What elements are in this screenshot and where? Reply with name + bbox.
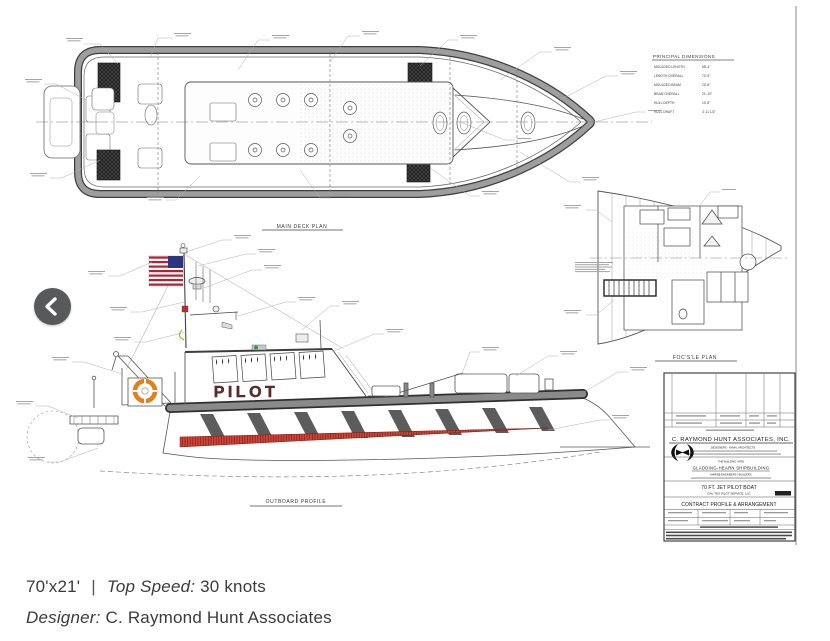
focsle-plan-view: FOC'S'LE PLAN — [590, 185, 788, 361]
focsle-interior — [624, 206, 756, 330]
dim-row-label: HULL DEPTH — [654, 101, 675, 105]
dim-row-label: LENGTH OVERALL — [654, 74, 684, 78]
foredeck-fittings — [368, 373, 553, 397]
carousel-prev-button[interactable] — [34, 288, 71, 325]
blueprint-drawing: MAIN DECK PLAN PRINCIPAL DIMENSIONS MOUL… — [0, 0, 830, 560]
deckhouse-plan — [92, 82, 490, 168]
main-deck-plan-view: MAIN DECK PLAN — [36, 50, 652, 230]
dim-row-label: MOULDED BEAM — [654, 83, 681, 87]
wheelhouse-windows — [212, 351, 325, 383]
designer-label: Designer: — [26, 608, 101, 627]
dim-row-value: 68'-4" — [702, 65, 711, 69]
nav-light-green — [254, 346, 258, 350]
main-deck-plan-label: MAIN DECK PLAN — [277, 224, 328, 230]
caption-specs: 70'x21'|Top Speed: 30 knots — [26, 577, 266, 597]
dim-row-value: 20'-8" — [702, 83, 711, 87]
us-flag — [149, 256, 183, 286]
dim-row-value: 3'-11 1/2" — [702, 110, 716, 114]
dim-row-label: BEAM OVERALL — [654, 92, 680, 96]
principal-dimensions-rows: MOULDED LENGTH 68'-4" LENGTH OVERALL 70'… — [654, 65, 716, 114]
top-speed-label: Top Speed: — [107, 577, 195, 596]
title-block-sheet-title: CONTRACT PROFILE & ARRANGEMENT — [681, 502, 776, 508]
focsle-plan-label: FOC'S'LE PLAN — [673, 355, 717, 361]
title-block-builder-heading: THE BUILDING YARD — [718, 460, 744, 464]
principal-dimensions-table: PRINCIPAL DIMENSIONS MOULDED LENGTH 68'-… — [652, 54, 734, 114]
focsle-ladder — [604, 280, 656, 296]
page: MAIN DECK PLAN PRINCIPAL DIMENSIONS MOUL… — [0, 0, 830, 641]
designer-value: C. Raymond Hunt Associates — [106, 608, 332, 627]
title-block-builder-subtitle: MARINE ENGINEERS / BUILDERS — [710, 473, 751, 477]
caption-separator: | — [91, 577, 96, 596]
dim-row-label: MOULDED LENGTH — [654, 65, 685, 69]
title-block-firm-subtitle: DESIGNERS - NAVAL ARCHITECTS — [711, 446, 756, 450]
dim-row-value: 21'-10" — [702, 92, 713, 96]
title-block-builder: GLADDING-HEARN SHIPBUILDING — [693, 466, 770, 471]
title-block-client: GAL-TEX PILOT SERVICE, LLC — [707, 492, 751, 496]
top-speed-value: 30 knots — [200, 577, 266, 596]
dim-row-value: 70'-9" — [702, 74, 711, 78]
title-block-fine-print — [666, 532, 792, 540]
title-block-project: 70 FT. JET PILOT BOAT — [701, 485, 756, 491]
title-block: C. RAYMOND HUNT ASSOCIATES, INC. DESIGNE… — [664, 373, 795, 541]
dim-row-value: 10'-8" — [702, 101, 711, 105]
chevron-left-icon — [34, 288, 71, 325]
pilot-hull-marking: PILOT — [214, 384, 279, 401]
boat-dimensions: 70'x21' — [26, 577, 80, 596]
title-block-firm: C. RAYMOND HUNT ASSOCIATES, INC. — [672, 437, 790, 443]
principal-dimensions-title: PRINCIPAL DIMENSIONS — [653, 54, 715, 59]
caption-designer: Designer: C. Raymond Hunt Associates — [26, 608, 332, 628]
outboard-profile-label: OUTBOARD PROFILE — [266, 499, 327, 505]
outboard-profile-view: PILOT OUTBOARD PROFILE — [27, 244, 650, 507]
life-ring — [133, 379, 157, 403]
